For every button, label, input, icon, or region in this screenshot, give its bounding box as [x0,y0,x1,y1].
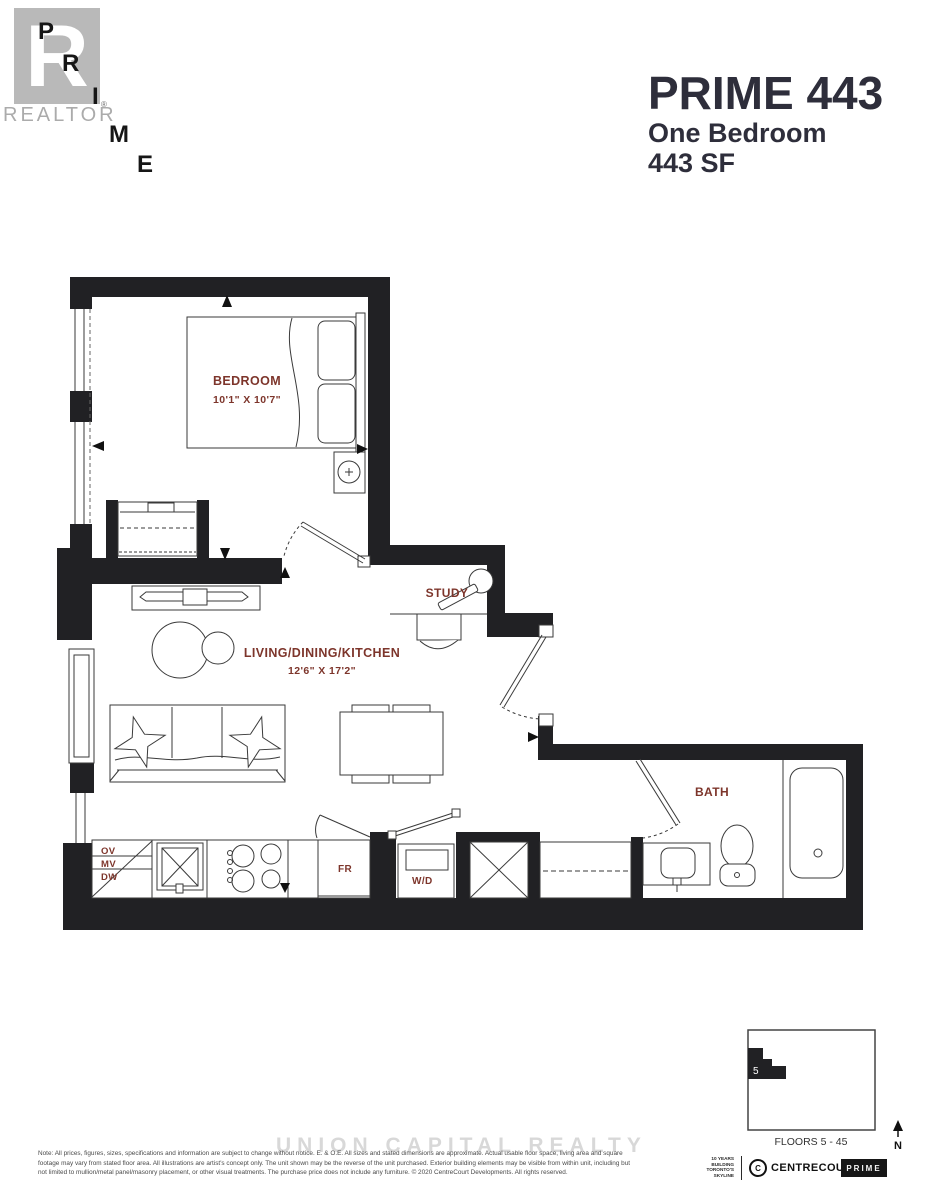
coffee-tables [152,622,234,678]
disclaimer: Note: All prices, figures, sizes, specif… [38,1149,630,1178]
nightstand [334,452,365,493]
bath-label: BATH [695,785,729,799]
keyplan-floor-label: FLOORS 5 - 45 [775,1136,848,1148]
key-plan: 5 FLOORS 5 - 45 [748,1030,875,1148]
bedroom-door [284,522,370,567]
media-console [132,586,260,610]
living-dims: 12'6" X 17'2" [288,665,356,677]
kitchen-sink [157,843,203,893]
toilet [720,825,755,886]
footer-divider [741,1156,742,1180]
dishwasher-label: DW [101,872,118,883]
bath-vanity [643,843,710,892]
entry-closet [540,842,631,898]
washer-dryer-label: W/D [412,876,433,887]
dining-table [340,705,443,783]
years-badge: 10 YEARS BUILDING TORONTO'S SKYLINE [698,1156,734,1178]
bedroom-closet [118,502,197,556]
bath-door [636,759,680,838]
floor-plan: BEDROOM 10'1" X 10'7" STUDY LIVING/DININ… [0,0,928,1200]
fridge [316,815,370,896]
north-label: N [894,1140,902,1152]
entry-door [500,625,553,726]
living-label: LIVING/DINING/KITCHEN [244,646,400,660]
microwave-label: MV [101,859,116,870]
disclaimer-line: Note: All prices, figures, sizes, specif… [38,1149,630,1159]
study-label: STUDY [426,586,469,600]
study-area [390,569,493,649]
oven-label: OV [101,846,116,857]
disclaimer-line: footage may vary from stated floor area.… [38,1159,630,1169]
shaft [470,842,528,898]
sofa [110,705,285,782]
page: { "header": { "logo": { "big_r": "R", "l… [0,0,928,1200]
disclaimer-line: not limited to mullion/metal panel/mason… [38,1168,630,1178]
centrecourt-icon: C [749,1159,767,1177]
bedroom-label: BEDROOM [213,374,281,388]
bedroom-dims: 10'1" X 10'7" [213,394,281,406]
desk-chair [420,640,458,649]
north-arrow: N [893,1120,903,1152]
keyplan-unit-number: 5 [753,1066,759,1077]
prime-logo-box: PRIME [841,1159,887,1177]
study-desk [417,614,461,640]
fridge-label: FR [338,864,353,875]
bathtub [783,760,843,898]
